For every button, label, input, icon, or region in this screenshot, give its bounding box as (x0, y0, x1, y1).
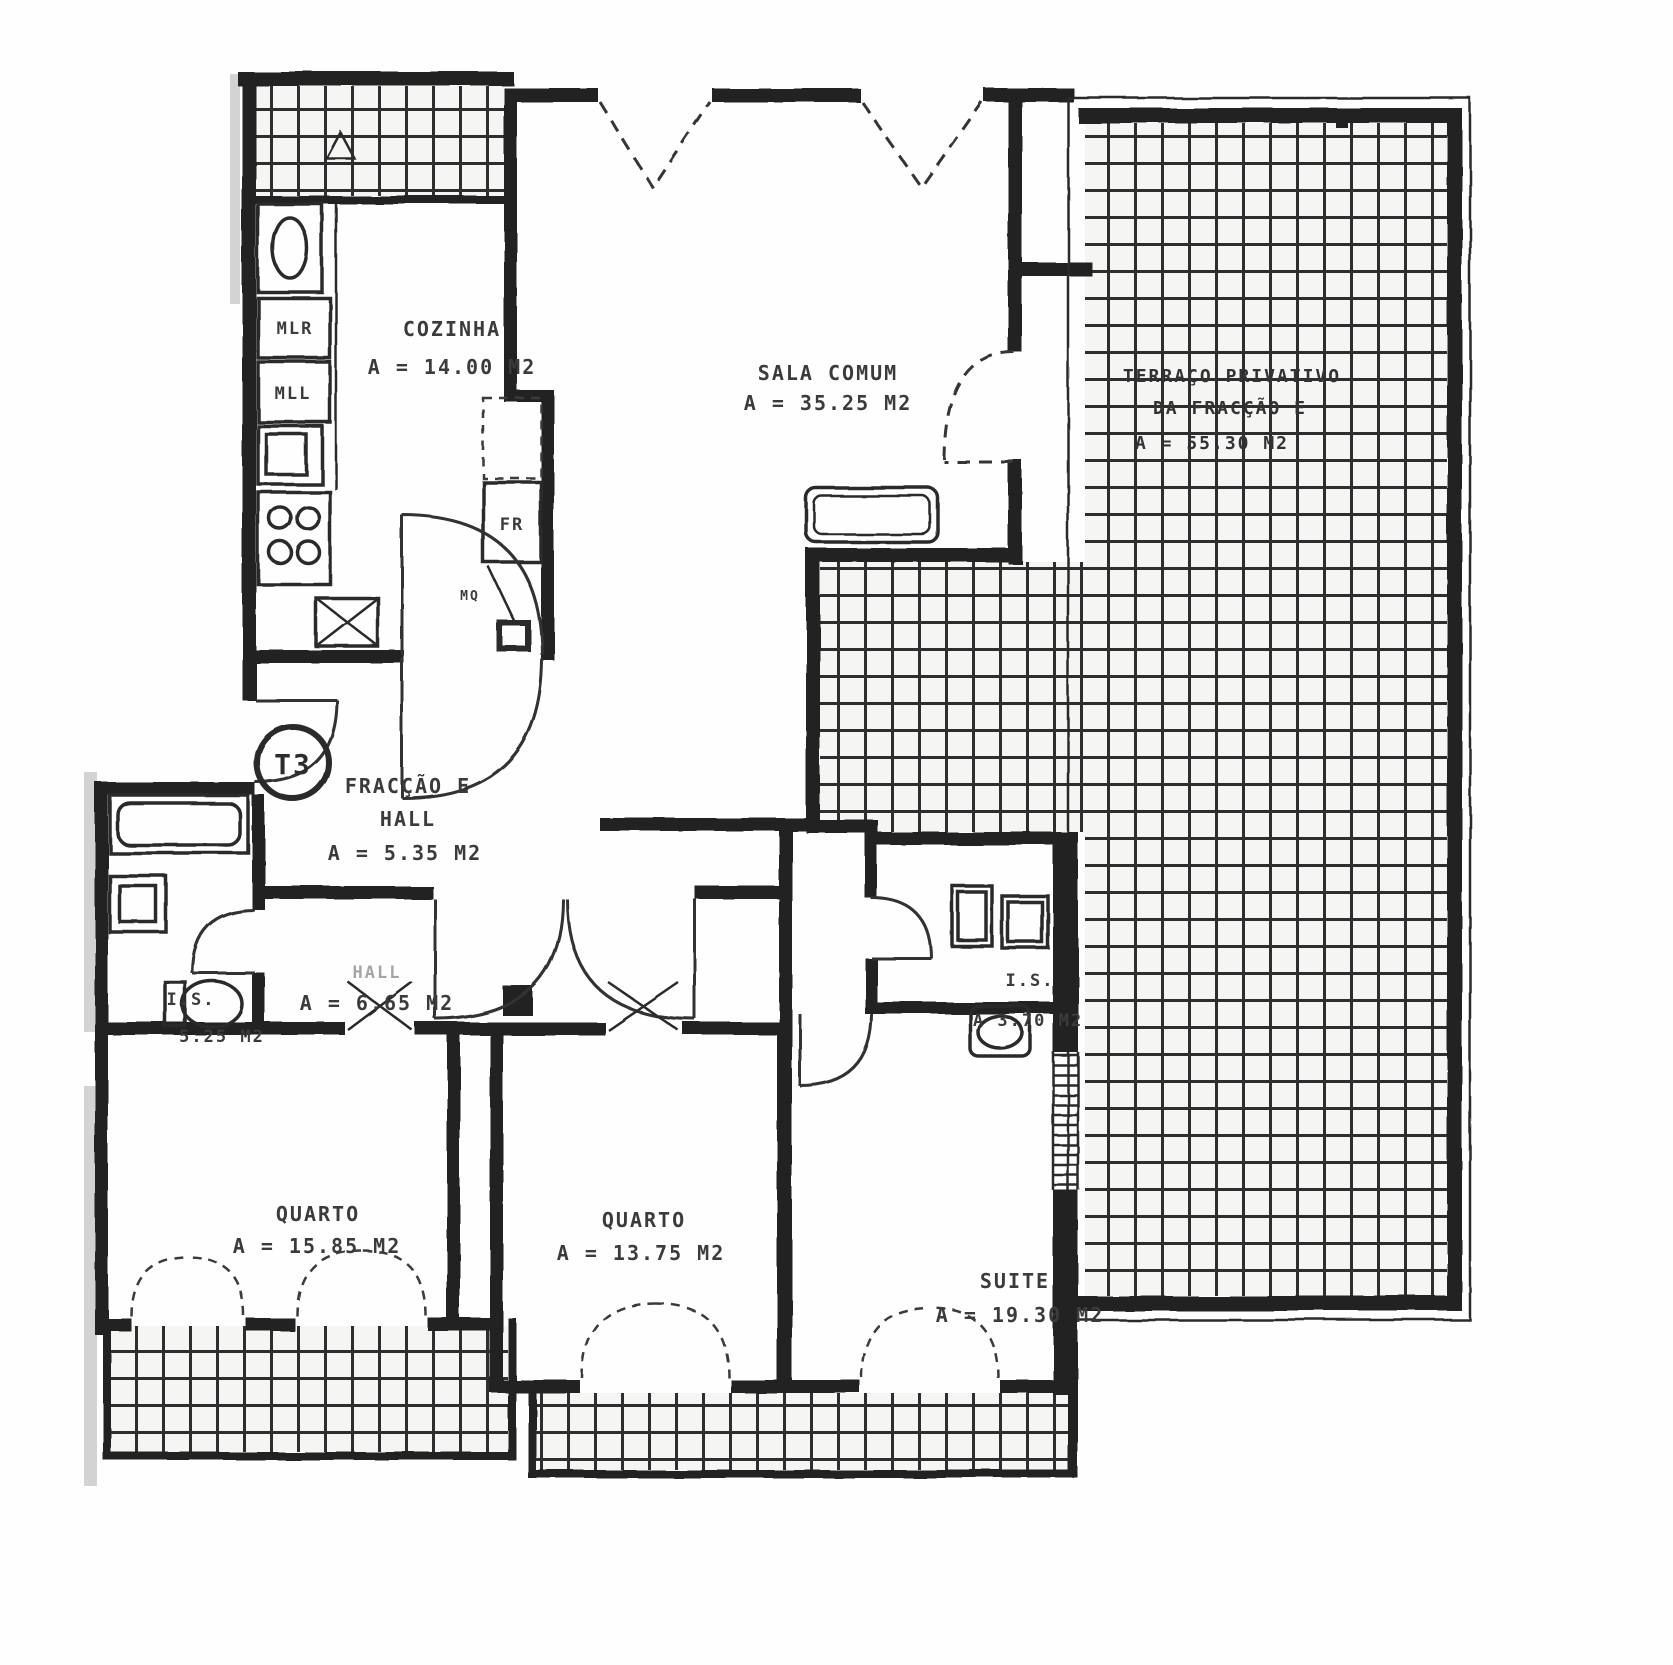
quarto1-balcony-door-2 (297, 1250, 426, 1316)
terrace-extension-tiles (820, 562, 1085, 832)
label-quarto1-area: A = 15.85 M2 (233, 1234, 402, 1258)
balcony-bottom-left-tiles (111, 1326, 508, 1452)
label-appliance-mlr: MLR (277, 319, 314, 339)
terrace-door-arc (944, 352, 1014, 462)
bathroom-right-door-arc (871, 898, 931, 958)
laundry-tub-icon (273, 218, 307, 278)
label-terraco-area: A = 55.30 M2 (1135, 433, 1289, 454)
suite-closet-hatch (1053, 1052, 1078, 1190)
label-sala-area: A = 35.25 M2 (744, 391, 913, 415)
label-is-right-name: I.S. (1006, 971, 1055, 991)
label-is-left-name: I.S. (167, 990, 216, 1010)
label-is-left-area: 5.25 M2 (179, 1027, 265, 1047)
quarto1-balcony-door-1 (131, 1257, 244, 1316)
label-is-right-area: A 3.70 M2 (973, 1011, 1083, 1031)
corner-mark (1336, 116, 1348, 128)
pantry-cabinet (483, 398, 541, 478)
label-appliance-fr: FR (500, 515, 524, 535)
label-terraco-line2: DA FRACÇÃO E (1153, 396, 1307, 419)
label-cozinha-area: A = 14.00 M2 (368, 355, 537, 379)
planter-box (806, 488, 938, 542)
quarto2-door-leaves (608, 982, 678, 1030)
label-fraccao-area: A = 5.35 M2 (328, 841, 482, 865)
sala-window-1 (600, 102, 710, 188)
sala-window-2 (862, 102, 982, 188)
unit-badge-label: T3 (274, 748, 312, 781)
label-terraco-line1: TERRAÇO PRIVATIVO (1123, 366, 1341, 387)
label-appliance-mq: MQ (460, 589, 480, 604)
label-quarto1-name: QUARTO (276, 1202, 360, 1226)
label-quarto2-area: A = 13.75 M2 (557, 1241, 726, 1265)
label-suite-area: A = 19.30 M2 (936, 1303, 1105, 1327)
balcony-bottom-center-tiles (536, 1393, 1068, 1470)
balcony-top-left-tiles (256, 86, 504, 196)
suite-door-arc (800, 1014, 872, 1086)
quarto2-balcony-door (582, 1303, 729, 1378)
label-cozinha-name: COZINHA (403, 317, 501, 341)
label-suite-name: SUITE (980, 1269, 1050, 1293)
label-fraccao-line2: HALL (380, 807, 436, 831)
label-hall-area: A = 6.65 M2 (300, 991, 454, 1015)
terrace-tiles (1085, 123, 1447, 1296)
floor-plan-scan: T3 COZINHA A = 14.00 M2 SALA COMUM A = 3… (0, 0, 1673, 1665)
bathroom-left-door-arc (192, 910, 255, 973)
hall-double-door-right-arc (567, 899, 695, 1019)
label-quarto2-name: QUARTO (602, 1208, 686, 1232)
stove-box (258, 492, 330, 584)
label-sala-name: SALA COMUM (758, 361, 898, 385)
label-hall-name: HALL (353, 963, 402, 983)
label-fraccao-line1: FRACÇÃO E (345, 774, 471, 798)
label-appliance-mll: MLL (275, 384, 312, 404)
floor-plan-drawing: T3 COZINHA A = 14.00 M2 SALA COMUM A = 3… (0, 0, 1673, 1665)
